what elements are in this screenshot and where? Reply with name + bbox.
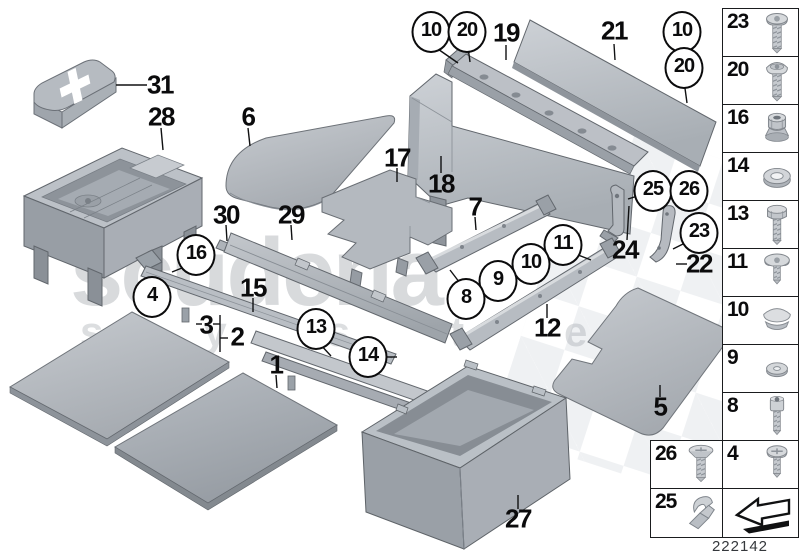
part-2-clip-tab [288,376,295,390]
legend-cell-number: 26 [651,441,676,489]
part-22-curved-bracket [650,206,675,262]
hex-bolt-icon [758,202,796,248]
legend-cell-10: 10 [722,296,799,346]
washer-small-icon [758,346,796,392]
callout-20: 20 [665,47,704,89]
callout-18: 18 [428,169,454,200]
callout-14: 14 [349,336,388,378]
legend-cell-number: 8 [723,393,738,441]
callout-19: 19 [493,18,519,49]
legend-cell-4: 4 [722,440,799,490]
callout-24: 24 [612,235,638,266]
part-5-contoured-mat [553,288,728,435]
callout-26: 26 [670,170,709,212]
diagram-number: 222142 [700,538,780,555]
legend-cell-number: 14 [723,153,748,201]
callout-13: 13 [297,308,336,350]
legend-cell-14: 14 [722,152,799,202]
legend-cell-13: 13 [722,200,799,250]
callout-25: 25 [634,170,673,212]
legend-cell-number: 25 [651,489,676,537]
callout-3: 3 [200,310,213,341]
washer-head-screw-icon [758,250,796,296]
oval-head-screw-icon [758,58,796,104]
callout-30: 30 [213,200,239,231]
callout-12: 12 [534,313,560,344]
callout-31: 31 [147,70,173,101]
callout-10: 10 [412,11,451,53]
callout-1: 1 [270,350,283,381]
callout-7: 7 [469,192,482,223]
legend-cell-16: 16 [722,104,799,154]
spring-clip-icon [682,490,720,536]
plug-cap-icon [758,298,796,344]
callout-15: 15 [240,273,266,304]
legend-cell-direction-arrow [722,488,799,538]
direction-arrow-icon [732,492,796,534]
washer-large-icon [758,154,796,200]
legend-cell-number: 4 [723,441,738,489]
callout-20: 20 [448,11,487,53]
legend-cell-number [723,489,727,537]
callout-4: 4 [133,276,172,318]
callout-8: 8 [447,278,486,320]
legend-cell-20: 20 [722,56,799,106]
flange-nut-icon [758,106,796,152]
callout-27: 27 [505,504,531,535]
callout-5: 5 [654,392,667,423]
socket-head-screw-icon [758,394,796,440]
legend-cell-number: 11 [723,249,747,297]
callout-6: 6 [242,102,255,133]
legend-cell-number: 20 [723,57,748,105]
legend-cell-number: 23 [723,9,748,57]
flat-head-screw-icon [682,442,720,488]
legend-cell-number: 16 [723,105,748,153]
part-3-clip-tab [182,308,189,322]
legend-cell-8: 8 [722,392,799,442]
legend-cell-number: 13 [723,201,748,249]
callout-2: 2 [231,322,244,353]
legend-cell-26: 26 [650,440,723,490]
legend-cell-23: 23 [722,8,799,58]
pan-phillips-screw-icon [758,442,796,488]
pan-torx-screw-icon [758,10,796,56]
callout-16: 16 [177,234,216,276]
callout-21: 21 [601,16,627,47]
callout-17: 17 [384,143,410,174]
part-31-first-aid-kit-lid [34,60,116,128]
callout-22: 22 [686,249,712,280]
callout-29: 29 [278,200,304,231]
legend-cell-11: 11 [722,248,799,298]
parts-diagram-page: scuderia systems [0,0,800,560]
callout-28: 28 [148,102,174,133]
legend-cell-9: 9 [722,344,799,394]
legend-cell-25: 25 [650,488,723,538]
legend-cell-number: 10 [723,297,748,345]
legend-cell-number: 9 [723,345,738,393]
